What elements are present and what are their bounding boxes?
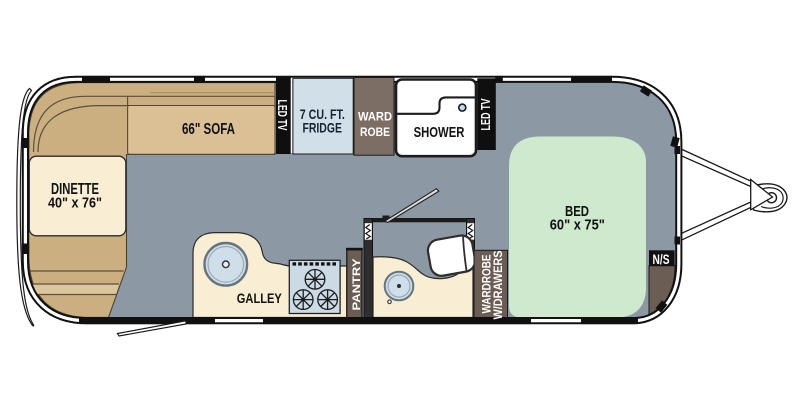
svg-text:SHOWER: SHOWER bbox=[414, 124, 465, 141]
svg-text:LED TV: LED TV bbox=[275, 100, 289, 131]
svg-text:W/DRAWERS: W/DRAWERS bbox=[493, 250, 505, 319]
svg-text:66" SOFA: 66" SOFA bbox=[182, 121, 235, 138]
svg-text:WARD: WARD bbox=[358, 112, 392, 124]
svg-text:ROBE: ROBE bbox=[360, 127, 390, 139]
svg-text:WARDROBE: WARDROBE bbox=[482, 254, 494, 313]
svg-text:N/S: N/S bbox=[653, 252, 670, 267]
svg-text:LED TV: LED TV bbox=[479, 98, 493, 130]
svg-text:GALLEY: GALLEY bbox=[237, 290, 283, 306]
svg-text:40" x 76": 40" x 76" bbox=[48, 195, 102, 212]
svg-text:60" x 75": 60" x 75" bbox=[550, 216, 605, 233]
svg-text:PANTRY: PANTRY bbox=[351, 259, 363, 311]
svg-text:FRIDGE: FRIDGE bbox=[302, 120, 342, 136]
